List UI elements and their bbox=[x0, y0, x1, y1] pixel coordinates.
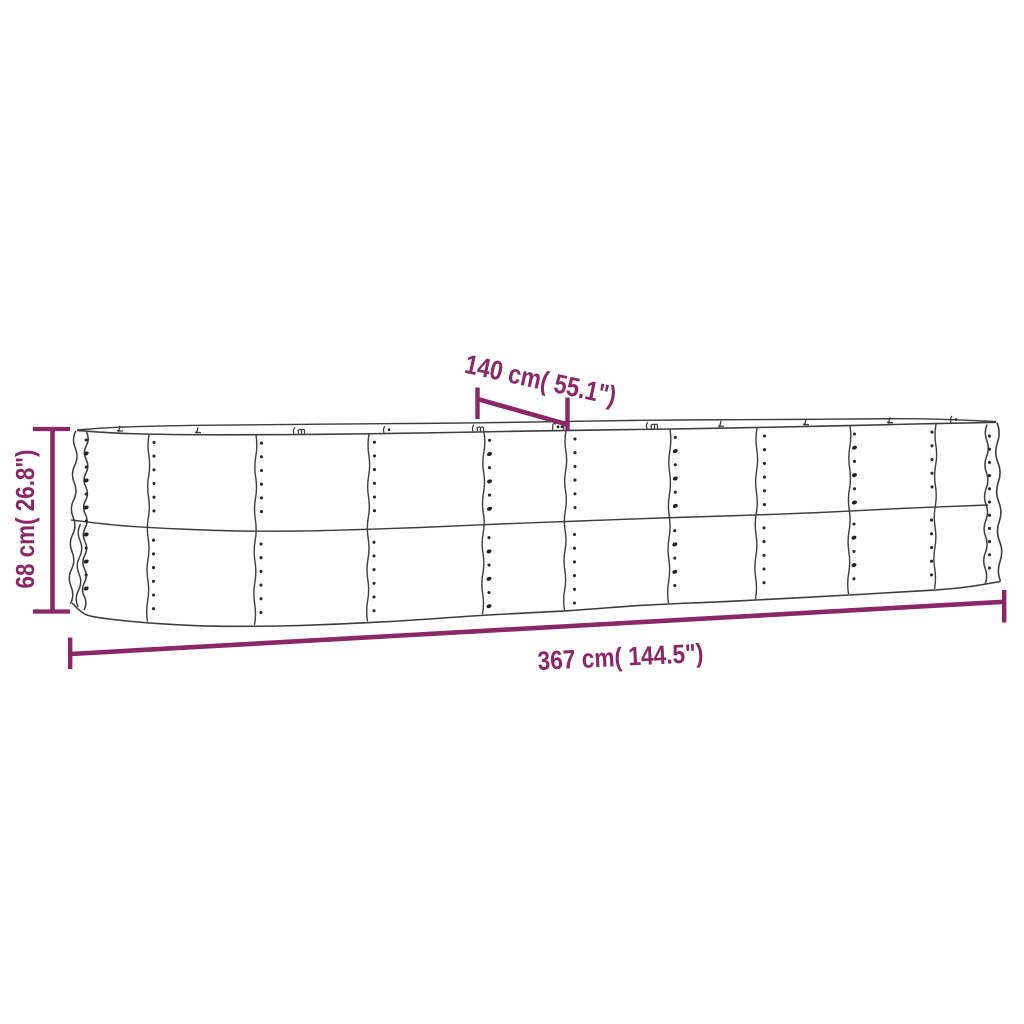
svg-text:68 cm( 26.8"): 68 cm( 26.8") bbox=[10, 450, 40, 589]
